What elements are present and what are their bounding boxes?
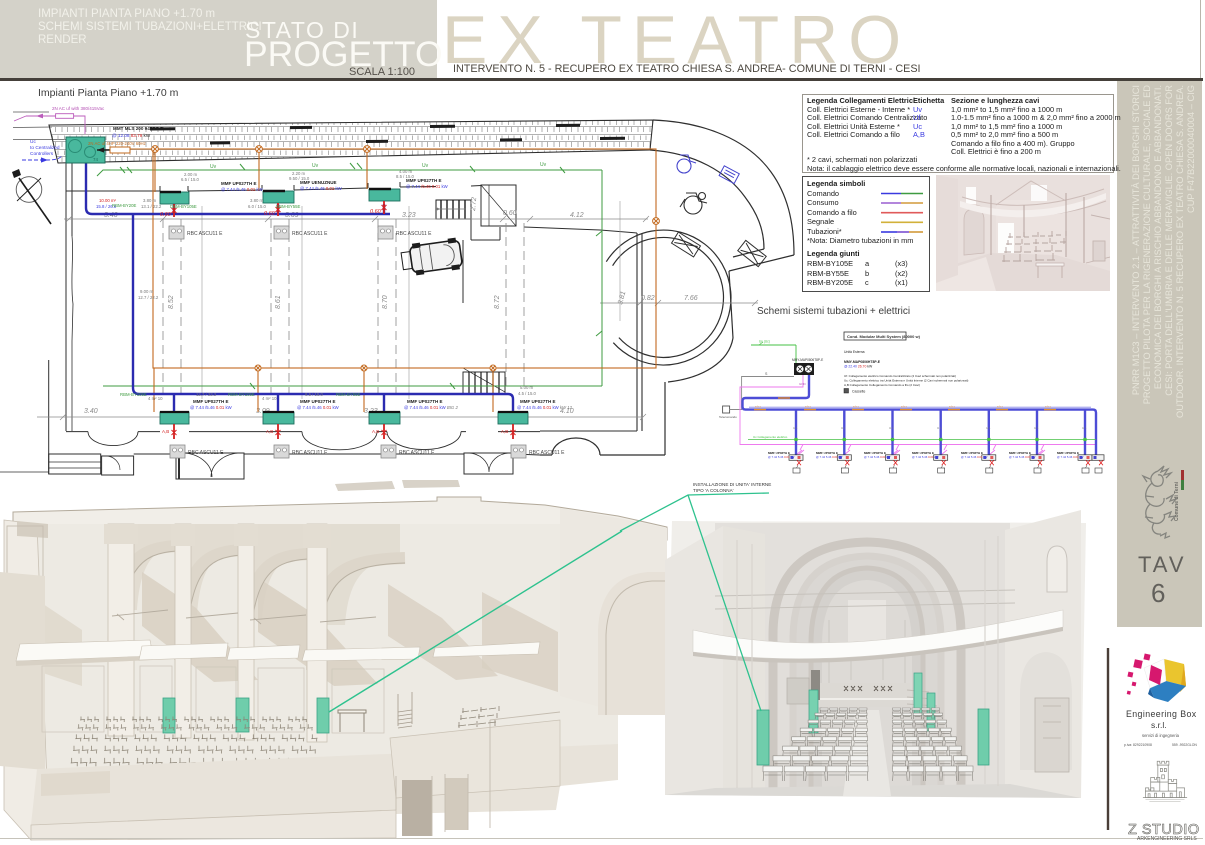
svg-text:U.I.: U.I. <box>1034 426 1039 430</box>
svg-text:RBM-BY55E: RBM-BY55E <box>336 392 360 397</box>
svg-text:MMT MLS 200 94TBF E: MMT MLS 200 94TBF E <box>113 126 163 131</box>
svg-text:U.I.: U.I. <box>793 426 798 430</box>
svg-text:@ 7.44 5.46 0.01 kW: @ 7.44 5.46 0.01 kW <box>1057 455 1084 459</box>
svg-text:a b c: a b c <box>853 405 860 409</box>
svg-text:@ 7.44 /5.46 0.01 kW BIG 2: @ 7.44 /5.46 0.01 kW BIG 2 <box>404 405 458 410</box>
svg-text:a b c: a b c <box>997 405 1004 409</box>
svg-text:A,B: A,B <box>162 429 169 434</box>
svg-text:U.I.: U.I. <box>1082 426 1087 430</box>
svg-text:p.iva: 8292210908: p.iva: 8292210908 <box>1124 743 1152 747</box>
svg-text:RBM-BY105E: RBM-BY105E <box>120 392 147 397</box>
svg-text:Uv Collegamento elettrico: Uv Collegamento elettrico <box>753 435 788 439</box>
svg-text:Uv (Uc): Uv (Uc) <box>759 340 770 344</box>
svg-text:RBC ASCU11 E: RBC ASCU11 E <box>292 231 328 237</box>
svg-text:U.I.: U.I. <box>937 426 942 430</box>
svg-text:RBM-BY20E: RBM-BY20E <box>112 203 136 208</box>
svg-text:6.5 / 15.0: 6.5 / 15.0 <box>181 177 200 182</box>
svg-text:RBM-BY105E: RBM-BY105E <box>228 392 255 397</box>
svg-text:4.12: 4.12 <box>570 212 584 219</box>
svg-text:RBC ASCU11 E: RBC ASCU11 E <box>396 231 432 237</box>
svg-text:6.0 / 15.0: 6.0 / 15.0 <box>248 204 267 209</box>
svg-text:4.5 / 15.0: 4.5 / 15.0 <box>518 391 537 396</box>
svg-text:@ 12.08 83.79 kW: @ 12.08 83.79 kW <box>112 133 151 138</box>
svg-text:0.60: 0.60 <box>370 209 382 215</box>
svg-text:@ 7.44 /5.46 0.01 kW: @ 7.44 /5.46 0.01 kW <box>406 184 449 189</box>
svg-text:A,B: A,B <box>501 429 508 434</box>
svg-text:a b c: a b c <box>755 405 762 409</box>
svg-text:a b c: a b c <box>949 405 956 409</box>
svg-text:Comune di Terni: Comune di Terni <box>1174 481 1180 521</box>
svg-text:servizi di ingegneria: servizi di ingegneria <box>1142 733 1180 738</box>
svg-text:@ 7.44 5.46 0.01 kW: @ 7.44 5.46 0.01 kW <box>816 455 843 459</box>
svg-text:@ 7.44 /5.46 0.01 kW: @ 7.44 /5.46 0.01 kW <box>300 186 343 191</box>
svg-text:DBM-BY55E: DBM-BY55E <box>276 204 300 209</box>
svg-text:ARKENGINEERING SRLS: ARKENGINEERING SRLS <box>1137 836 1197 842</box>
svg-text:@ 7.44 5.46 0.01 kW: @ 7.44 5.46 0.01 kW <box>864 455 891 459</box>
svg-text:Uv: Uv <box>312 163 319 169</box>
svg-text:3.80 m: 3.80 m <box>250 198 264 203</box>
svg-text:MMF UP027TH E: MMF UP027TH E <box>300 399 336 404</box>
svg-text:8.52: 8.52 <box>168 295 175 309</box>
svg-text:U.I.: U.I. <box>841 426 846 430</box>
svg-text:0.82: 0.82 <box>641 295 655 302</box>
svg-text:8.5 / 15.0: 8.5 / 15.0 <box>305 392 324 397</box>
svg-text:Uv: Uv <box>210 164 217 170</box>
svg-text:2N AC uf 4HP 220-240V 60Hz: 2N AC uf 4HP 220-240V 60Hz <box>88 141 146 146</box>
svg-text:U.I.: U.I. <box>986 426 991 430</box>
svg-text:8.72: 8.72 <box>494 295 501 309</box>
svg-text:to Centralized: to Centralized <box>30 145 60 151</box>
svg-text:@ 7.44 /5.46 0.01 kW: @ 7.44 /5.46 0.01 kW <box>221 187 264 192</box>
svg-text:559 -9922GLON: 559 -9922GLON <box>1172 743 1197 747</box>
svg-text:@ 7.44 5.46 0.01 kW: @ 7.44 5.46 0.01 kW <box>768 455 795 459</box>
svg-text:@ 7.44 /5.46 0.01 kW: @ 7.44 /5.46 0.01 kW <box>297 405 340 410</box>
svg-text:@ 7.44 5.46 0.01 kW: @ 7.44 5.46 0.01 kW <box>1009 455 1036 459</box>
svg-text:RBC ASCU11 E: RBC ASCU11 E <box>187 231 223 237</box>
svg-text:INSTALLAZIONE DI UNITA' INTERN: INSTALLAZIONE DI UNITA' INTERNE <box>693 482 771 487</box>
svg-text:Cassette: Cassette <box>852 390 865 394</box>
svg-text:A,B Collegamento Collegamento: A,B Collegamento Collegamento Comando a … <box>844 383 920 387</box>
svg-text:0.60: 0.60 <box>160 212 172 218</box>
svg-text:4 m² 10: 4 m² 10 <box>148 396 163 401</box>
svg-text:MMF UENUZNUE: MMF UENUZNUE <box>300 180 337 185</box>
svg-text:MMY-MAP0806T8P-E: MMY-MAP0806T8P-E <box>792 358 823 362</box>
svg-text:@ 7.44 5.46 0.01 kW: @ 7.44 5.46 0.01 kW <box>961 455 988 459</box>
svg-text:74: 74 <box>93 157 99 162</box>
svg-text:RBC ASCU11 E: RBC ASCU11 E <box>292 450 328 456</box>
svg-text:Cond. Modular Multi System (80: Cond. Modular Multi System (80000 w) <box>847 334 921 339</box>
svg-text:13.1 / 22.2: 13.1 / 22.2 <box>141 204 162 209</box>
svg-text:MMF UP027TH E: MMF UP027TH E <box>193 399 229 404</box>
svg-text:MMF UP027TH E: MMF UP027TH E <box>407 399 443 404</box>
svg-text:Uc: Collegamento elettrico tra: Uc: Collegamento elettrico tra Unità Est… <box>844 379 968 383</box>
svg-text:a b c: a b c <box>1045 405 1052 409</box>
svg-text:Unità Esterna: Unità Esterna <box>844 350 865 354</box>
svg-text:RBC ASCU11 E: RBC ASCU11 E <box>188 450 224 456</box>
svg-text:@ 7.44 5.46 0.01 kW: @ 7.44 5.46 0.01 kW <box>912 455 939 459</box>
svg-text:3.40: 3.40 <box>84 408 98 415</box>
svg-text:GND: GND <box>799 382 807 386</box>
svg-text:4 m² 10: 4 m² 10 <box>262 396 277 401</box>
svg-text:2.72: 2.72 <box>470 197 478 212</box>
svg-text:Controllers: Controllers <box>30 151 54 157</box>
svg-text:A,B: A,B <box>266 429 273 434</box>
svg-text:Uv: Uv <box>540 162 547 168</box>
svg-text:@ 22.40 26.70 kW: @ 22.40 26.70 kW <box>844 365 873 369</box>
svg-text:0.60: 0.60 <box>264 211 276 217</box>
svg-text:RBC ASCU11 E: RBC ASCU11 E <box>529 450 565 456</box>
svg-text:Engineering Box: Engineering Box <box>1126 709 1197 719</box>
svg-text:Telecomando: Telecomando <box>719 415 737 419</box>
svg-text:a b c: a b c <box>901 405 908 409</box>
svg-text:RBC ASCU11 E: RBC ASCU11 E <box>399 450 435 456</box>
svg-text:A,B: A,B <box>372 429 379 434</box>
svg-text:5.00 m: 5.00 m <box>520 385 534 390</box>
svg-text:Uc: Uc <box>30 139 36 145</box>
svg-text:12.7 / 22.2: 12.7 / 22.2 <box>138 295 159 300</box>
svg-text:MMF UP027TH E: MMF UP027TH E <box>221 181 257 186</box>
svg-text:DBM-BY105E: DBM-BY105E <box>170 204 197 209</box>
svg-text:Uf: Collegamento elettrico Com: Uf: Collegamento elettrico Comando Centr… <box>844 374 956 378</box>
svg-text:S: S <box>765 372 768 376</box>
svg-text:3.80 m: 3.80 m <box>143 198 157 203</box>
svg-text:Uv: Uv <box>422 163 429 169</box>
svg-text:7.66: 7.66 <box>684 295 698 302</box>
svg-text:U.I.: U.I. <box>889 426 894 430</box>
svg-text:12.7 / 22.2: 12.7 / 22.2 <box>196 392 217 397</box>
svg-text:2N AC uf with 380/415Vac: 2N AC uf with 380/415Vac <box>52 106 105 111</box>
svg-text:@ 7.44 /5.46 0.01 kW: @ 7.44 /5.46 0.01 kW <box>190 405 233 410</box>
svg-text:a b c: a b c <box>805 405 812 409</box>
svg-text:@ 7.44 /5.46 0.01 kW kW 12: @ 7.44 /5.46 0.01 kW kW 12 <box>517 405 573 410</box>
svg-text:MMF UP027TH E: MMF UP027TH E <box>406 178 442 183</box>
svg-text:8.70: 8.70 <box>382 295 389 309</box>
svg-text:MMF UP027TH E: MMF UP027TH E <box>520 399 556 404</box>
svg-text:MMY-MAP0806HT8P-E: MMY-MAP0806HT8P-E <box>844 360 881 364</box>
svg-text:0.60: 0.60 <box>503 210 517 217</box>
svg-text:s.r.l.: s.r.l. <box>1151 720 1167 730</box>
svg-text:8.61: 8.61 <box>275 295 282 309</box>
svg-text:3.23: 3.23 <box>402 212 416 219</box>
svg-text:TIPO 'A COLONNA': TIPO 'A COLONNA' <box>693 488 734 493</box>
svg-text:9.00 m: 9.00 m <box>140 289 154 294</box>
